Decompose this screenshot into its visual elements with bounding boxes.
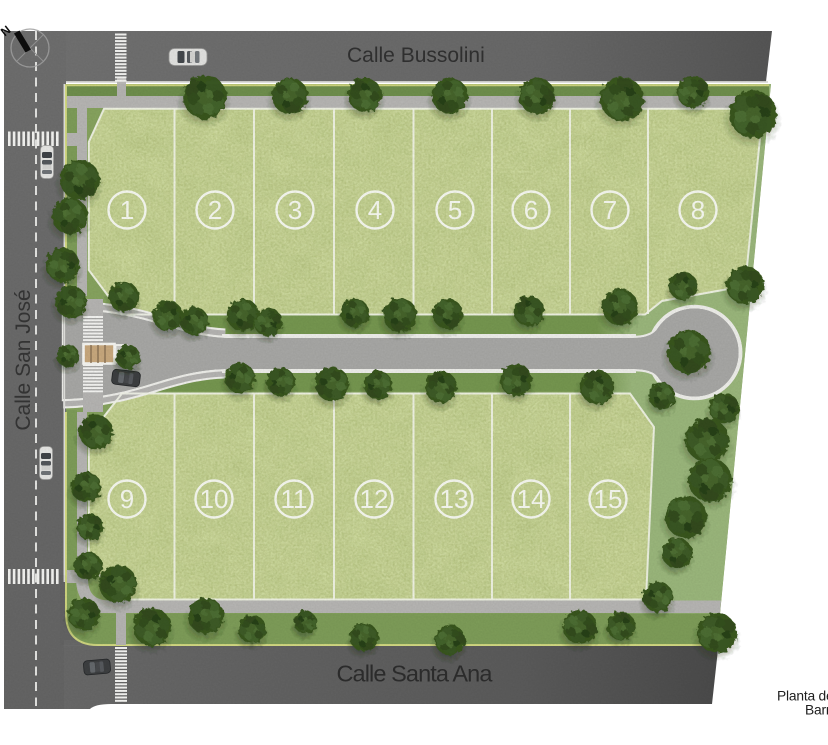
svg-text:Barrio: Barrio bbox=[805, 703, 828, 718]
svg-text:Calle San José: Calle San José bbox=[12, 289, 35, 430]
svg-text:Calle Santa Ana: Calle Santa Ana bbox=[336, 661, 493, 687]
svg-text:Calle Bussolini: Calle Bussolini bbox=[347, 44, 485, 67]
svg-text:Planta del: Planta del bbox=[777, 689, 828, 704]
